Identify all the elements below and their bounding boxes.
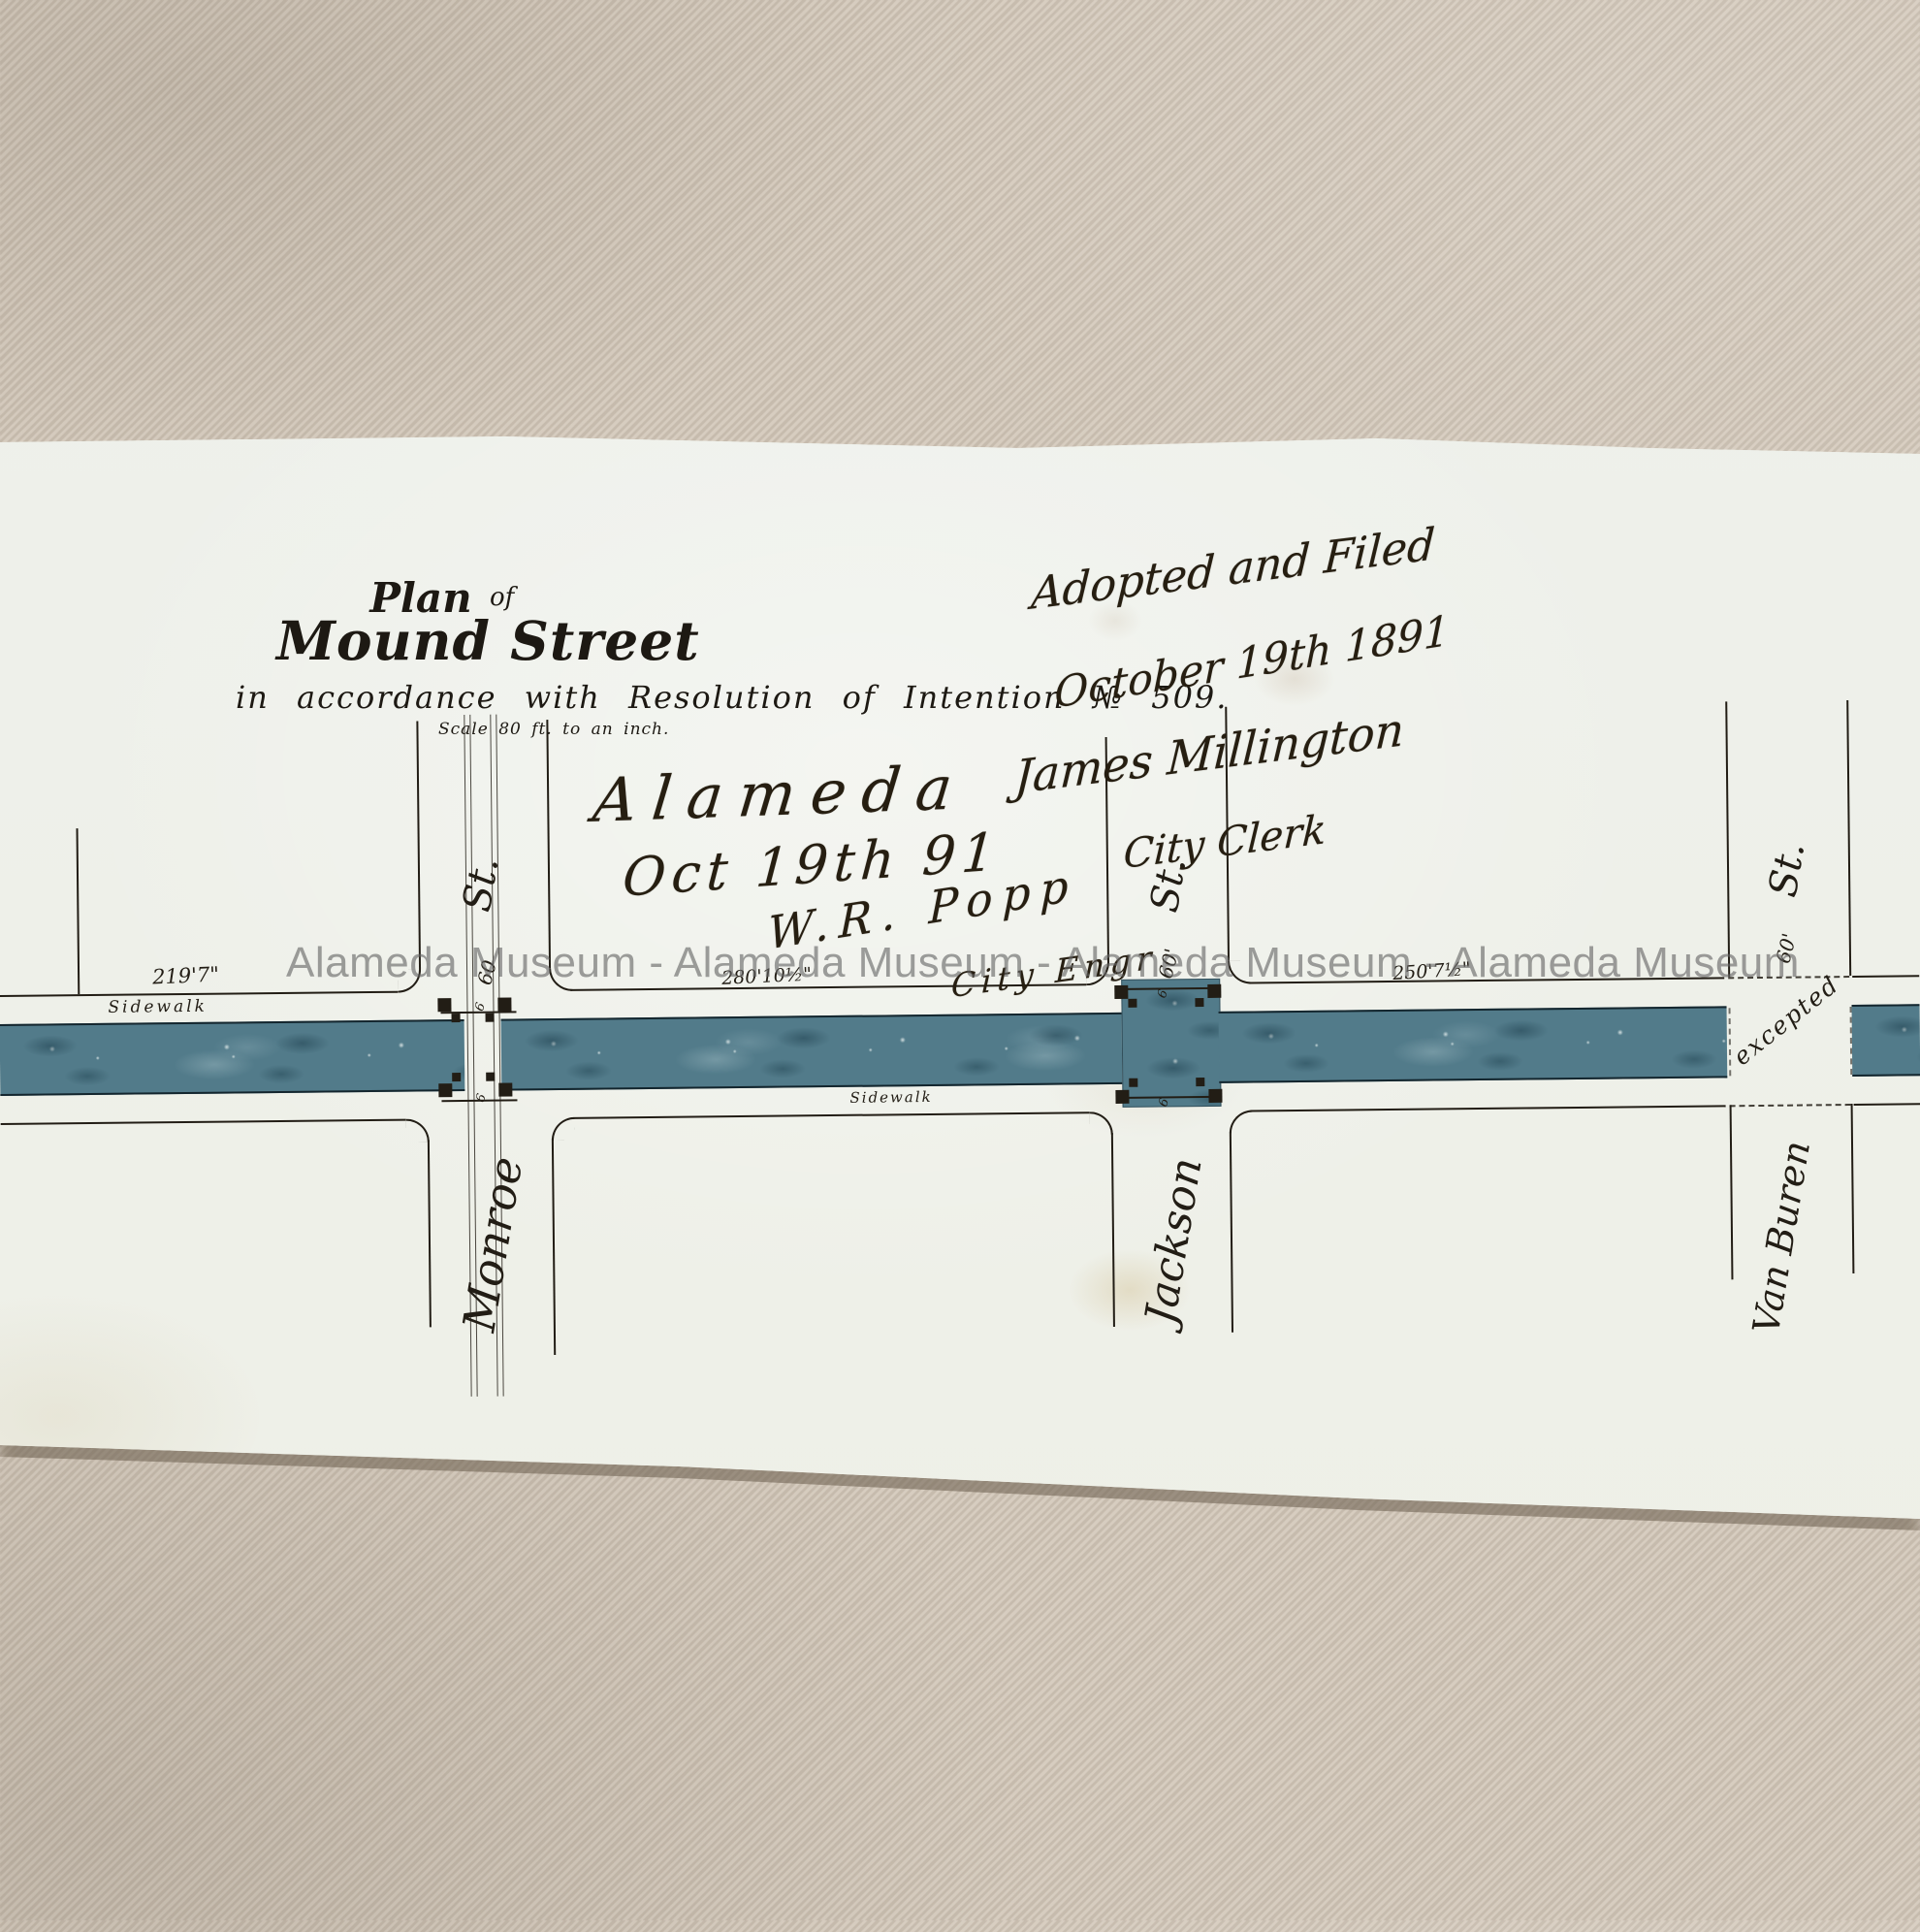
block-measurement: 219'7" [152, 962, 220, 988]
curb-return-arc [406, 1118, 430, 1142]
curb-return-arc [552, 1117, 575, 1141]
corner-monument-mark [1196, 1078, 1204, 1086]
monroe-street-name-label: Monroe [444, 1119, 541, 1368]
photograph-of-street-plan: { "watermark": "Alameda Museum - Alameda… [0, 0, 1920, 1920]
corner-monument-mark [438, 1083, 452, 1097]
monroe-street-suffix-label: St. [445, 849, 517, 920]
curb-return-arc [1090, 1111, 1113, 1135]
block-edge-line [1725, 701, 1730, 977]
sidewalk-label: Sidewalk [108, 997, 208, 1017]
corner-monument-mark [452, 1014, 461, 1022]
corner-monument-mark [1208, 1089, 1222, 1103]
vanburen-street-suffix-label: St. [1751, 834, 1823, 906]
corner-monument-mark [1195, 998, 1203, 1007]
corner-monument-mark [1129, 1079, 1137, 1087]
block-edge-line [546, 720, 551, 968]
mound-street-roadway-segment [1852, 1004, 1920, 1077]
corner-monument-mark [486, 1014, 495, 1022]
sidewalk-label: Sidewalk [849, 1088, 932, 1107]
corner-monument-mark [1128, 999, 1136, 1008]
title-street-name: Mound Street [276, 609, 693, 672]
title-scale: Scale 80 ft. to an inch. [438, 720, 669, 739]
block-edge-line [1730, 1105, 1734, 1279]
title-of: of [490, 583, 514, 612]
curb-return-arc [1230, 1110, 1253, 1133]
corner-monument-mark [1115, 1090, 1129, 1104]
jackson-street-name-label: Jackson [1125, 1116, 1222, 1365]
block-edge-line [1230, 1132, 1233, 1333]
engineer-note-place: Alameda [590, 752, 971, 836]
corner-monument-mark [437, 998, 451, 1012]
mound-street-roadway-segment [0, 1019, 464, 1096]
block-face-line-dashed [1730, 1104, 1851, 1107]
mound-street-roadway-segment [1219, 1006, 1728, 1082]
block-face-line [1, 1119, 406, 1125]
block-face-line [1852, 975, 1919, 978]
block-face-line [573, 1111, 1090, 1119]
museum-watermark: Alameda Museum - Alameda Museum - Alamed… [286, 939, 1800, 987]
corner-monument-mark [486, 1073, 495, 1081]
block-edge-line [552, 1139, 556, 1355]
block-edge-line [1111, 1133, 1115, 1327]
block-face-line [1854, 1103, 1920, 1106]
curb-mark: 6 [473, 1092, 490, 1105]
block-edge-line [1846, 700, 1851, 976]
block-edge-line [77, 828, 80, 994]
corner-monument-mark [452, 1073, 461, 1081]
vanburen-street-name-label: Van Buren [1732, 1109, 1831, 1367]
block-face-line [1251, 1105, 1726, 1111]
block-edge-line [428, 1140, 432, 1327]
block-edge-line [1851, 1104, 1855, 1273]
corner-monument-mark [498, 1082, 512, 1096]
mound-street-roadway-segment [501, 1013, 1123, 1091]
block-edge-line [416, 721, 421, 969]
